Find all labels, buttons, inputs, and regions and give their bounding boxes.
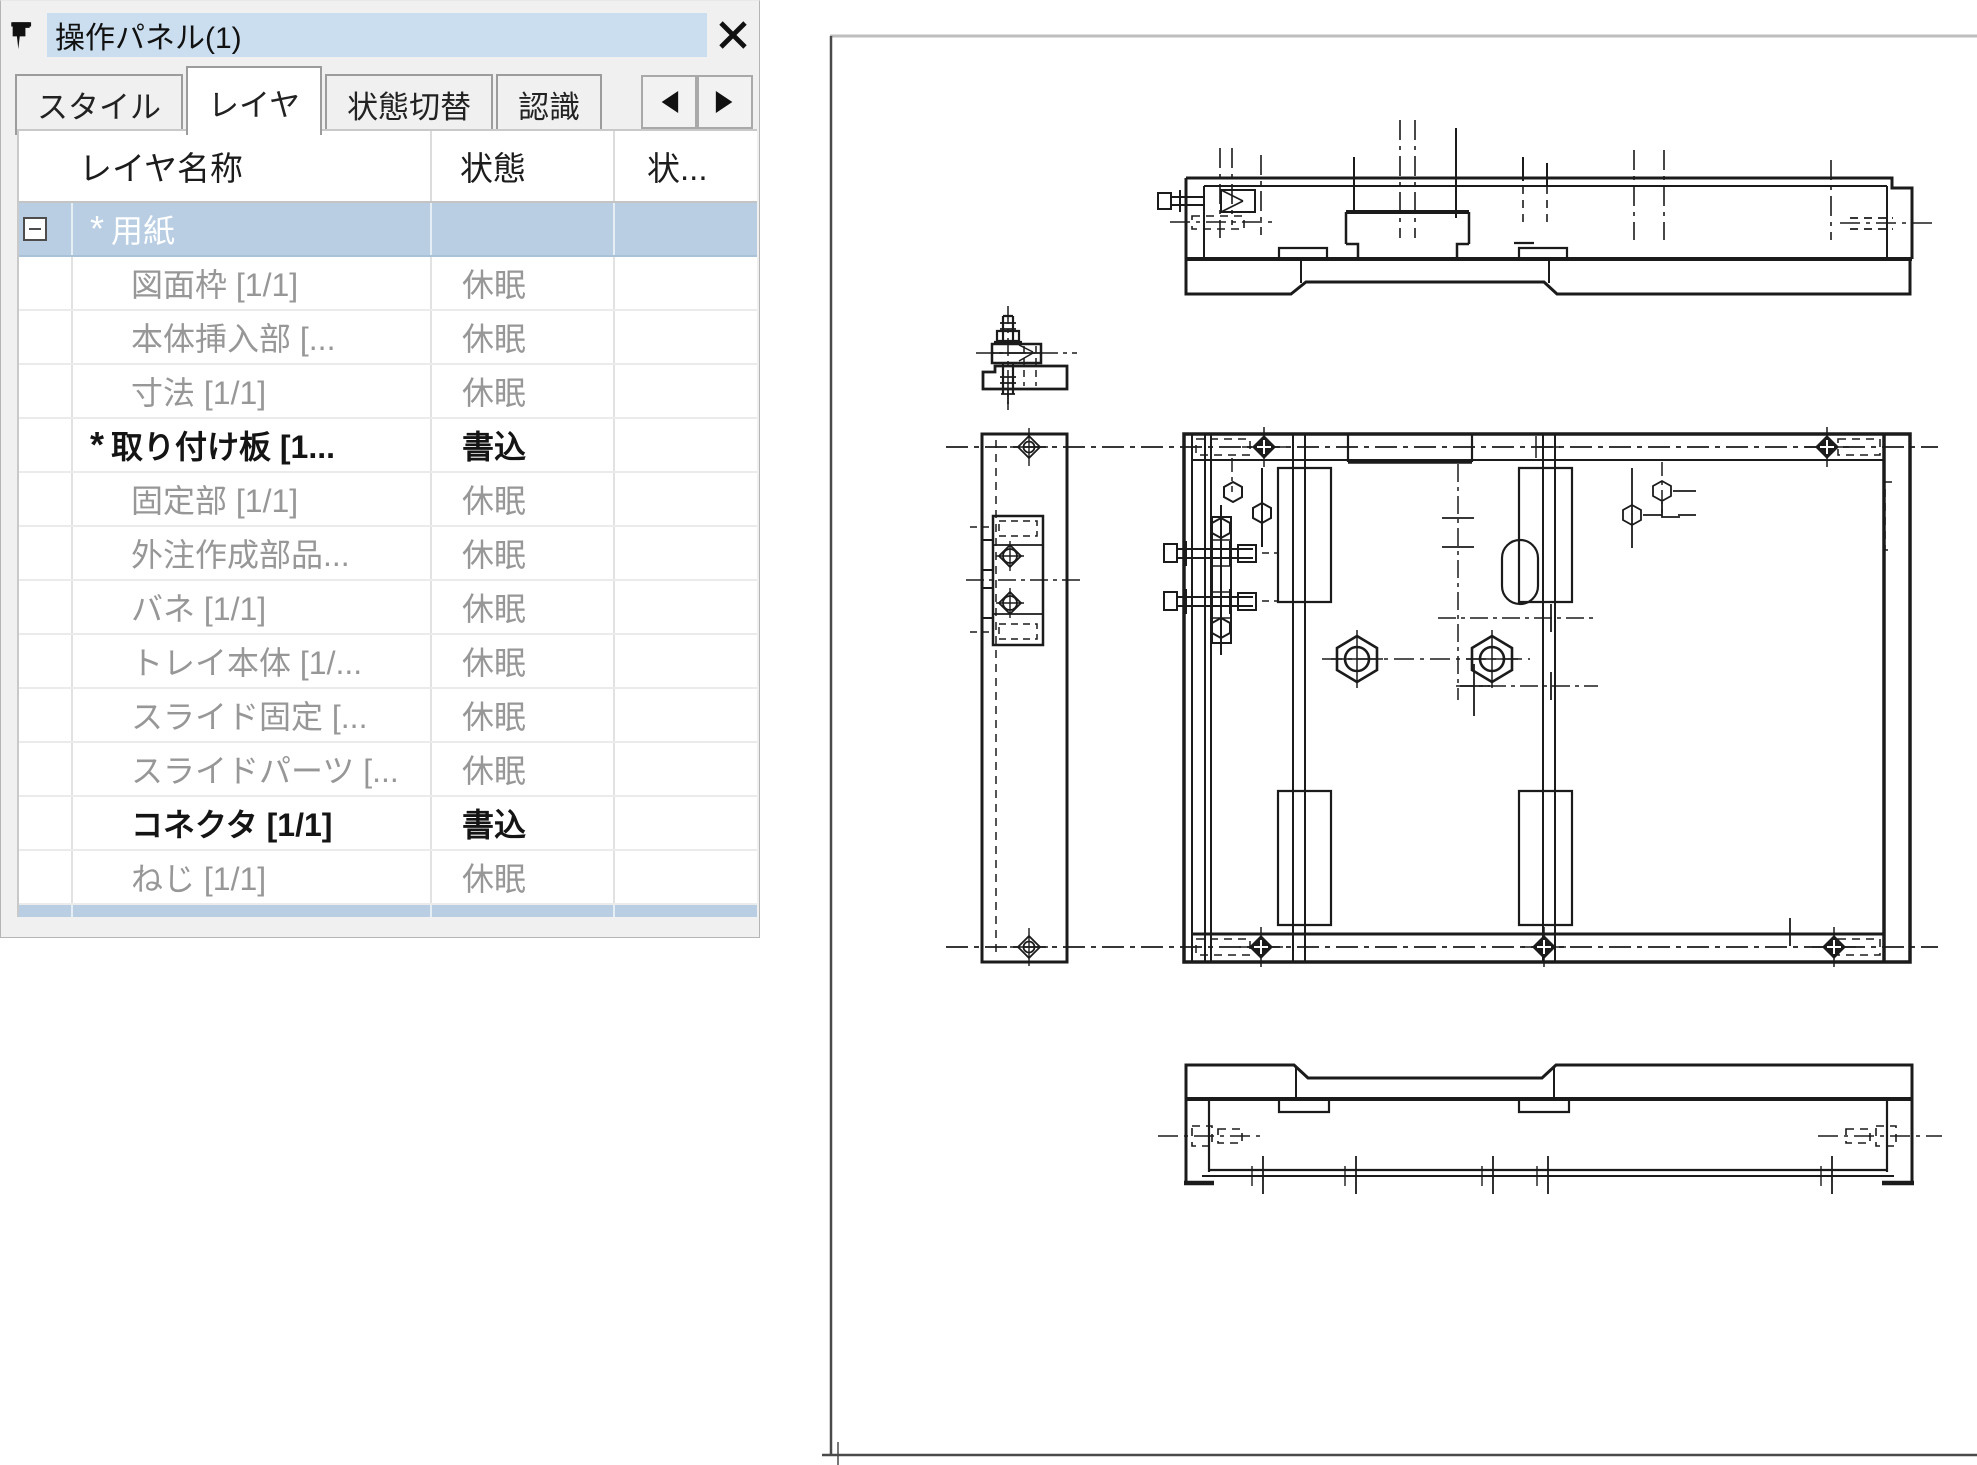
- layer-name: 固定部 [1/1]: [131, 476, 298, 522]
- row-gutter: [19, 743, 73, 795]
- layer-table-body: *用紙図面枠 [1/1]休眠本体挿入部 [...休眠寸法 [1/1]休眠*取り付…: [19, 203, 757, 905]
- layer-status: 休眠: [432, 581, 615, 633]
- layer-status: 休眠: [432, 311, 615, 363]
- layer-name: コネクタ [1/1]: [131, 800, 332, 846]
- layer-row[interactable]: バネ [1/1]休眠: [19, 581, 757, 635]
- top-view[interactable]: [1158, 120, 1938, 294]
- layer-status-2: [615, 419, 757, 471]
- column-header-2[interactable]: 状態: [432, 131, 615, 201]
- panel-titlebar[interactable]: 操作パネル(1): [1, 1, 759, 63]
- left-arrow-icon: [658, 89, 680, 115]
- layer-status: 休眠: [432, 635, 615, 687]
- layer-status-2: [615, 689, 757, 741]
- titlebar-background: 操作パネル(1): [47, 13, 707, 57]
- column-header-1[interactable]: レイヤ名称: [19, 131, 432, 201]
- tab-4[interactable]: 認識: [496, 74, 602, 135]
- tab-scroll-right-button[interactable]: [697, 75, 753, 129]
- layer-asterisk: *: [83, 435, 111, 455]
- fastener-detail[interactable]: [976, 306, 1077, 410]
- layer-row[interactable]: スライド固定 [...休眠: [19, 689, 757, 743]
- partial-row[interactable]: [19, 905, 757, 917]
- layer-status: 休眠: [432, 365, 615, 417]
- layer-status-2: [615, 527, 757, 579]
- layer-name: 寸法 [1/1]: [131, 368, 266, 414]
- row-gutter: [19, 365, 73, 417]
- operation-panel: 操作パネル(1) スタイルレイヤ状態切替認識 レイヤ名称状態状... *用紙図面: [0, 0, 760, 938]
- layer-status: 休眠: [432, 851, 615, 903]
- expand-toggle-icon[interactable]: [19, 203, 73, 255]
- layer-name: 用紙: [111, 206, 175, 252]
- layer-row[interactable]: *用紙: [19, 203, 757, 257]
- layer-name: 本体挿入部 [...: [131, 314, 335, 360]
- layer-status-2: [615, 311, 757, 363]
- front-view[interactable]: [1164, 427, 1910, 967]
- layer-name: 外注作成部品...: [131, 530, 350, 576]
- tab-scroll-left-button[interactable]: [641, 75, 697, 129]
- layer-table: レイヤ名称状態状... *用紙図面枠 [1/1]休眠本体挿入部 [...休眠寸法…: [17, 129, 757, 917]
- row-gutter: [19, 581, 73, 633]
- right-arrow-icon: [714, 89, 736, 115]
- pin-icon[interactable]: [1, 18, 47, 52]
- close-icon: [715, 17, 751, 53]
- layer-row[interactable]: 図面枠 [1/1]休眠: [19, 257, 757, 311]
- layer-row[interactable]: 本体挿入部 [...休眠: [19, 311, 757, 365]
- layer-name: トレイ本体 [1/...: [131, 638, 362, 684]
- tab-2[interactable]: レイヤ: [186, 66, 322, 135]
- layer-row[interactable]: *取り付け板 [1...書込: [19, 419, 757, 473]
- layer-status: 書込: [432, 797, 615, 849]
- layer-row[interactable]: 固定部 [1/1]休眠: [19, 473, 757, 527]
- layer-row[interactable]: トレイ本体 [1/...休眠: [19, 635, 757, 689]
- layer-status: [432, 203, 615, 255]
- layer-row[interactable]: ねじ [1/1]休眠: [19, 851, 757, 905]
- layer-name: バネ [1/1]: [131, 584, 266, 630]
- pushpin-icon: [7, 18, 41, 52]
- layer-name: 図面枠 [1/1]: [131, 260, 298, 306]
- layer-status-2: [615, 743, 757, 795]
- row-gutter: [19, 419, 73, 471]
- tab-3[interactable]: 状態切替: [325, 74, 493, 135]
- layer-status: 休眠: [432, 473, 615, 525]
- side-view[interactable]: [966, 428, 1080, 966]
- layer-asterisk: *: [83, 219, 111, 239]
- layer-status: 休眠: [432, 743, 615, 795]
- layer-status: 書込: [432, 419, 615, 471]
- layer-status-2: [615, 581, 757, 633]
- column-header-3[interactable]: 状...: [615, 131, 757, 201]
- tab-scroll-buttons: [641, 75, 753, 129]
- layer-name: ねじ [1/1]: [131, 854, 266, 900]
- row-gutter: [19, 257, 73, 309]
- centerlines: [946, 447, 1938, 947]
- row-gutter: [19, 527, 73, 579]
- panel-title: 操作パネル(1): [55, 13, 242, 57]
- tab-bar: スタイルレイヤ状態切替認識: [1, 63, 759, 135]
- layer-name: 取り付け板 [1...: [111, 422, 335, 468]
- row-gutter: [19, 473, 73, 525]
- layer-status-2: [615, 203, 757, 255]
- tab-1[interactable]: スタイル: [15, 74, 183, 135]
- layer-status-2: [615, 635, 757, 687]
- row-gutter: [19, 851, 73, 903]
- row-gutter: [19, 635, 73, 687]
- layer-row[interactable]: スライドパーツ [...休眠: [19, 743, 757, 797]
- layer-status: 休眠: [432, 689, 615, 741]
- layer-status: 休眠: [432, 527, 615, 579]
- layer-name: スライド固定 [...: [131, 692, 367, 738]
- layer-row[interactable]: 寸法 [1/1]休眠: [19, 365, 757, 419]
- layer-status-2: [615, 473, 757, 525]
- close-button[interactable]: [707, 11, 759, 59]
- row-gutter: [19, 689, 73, 741]
- layer-row[interactable]: コネクタ [1/1]書込: [19, 797, 757, 851]
- row-gutter: [19, 797, 73, 849]
- layer-status-2: [615, 365, 757, 417]
- layer-status: 休眠: [432, 257, 615, 309]
- layer-status-2: [615, 257, 757, 309]
- layer-row[interactable]: 外注作成部品...休眠: [19, 527, 757, 581]
- layer-status-2: [615, 851, 757, 903]
- layer-name: スライドパーツ [...: [131, 746, 399, 792]
- bottom-view[interactable]: [1158, 1065, 1942, 1194]
- layer-status-2: [615, 797, 757, 849]
- tab-strip: スタイルレイヤ状態切替認識: [15, 66, 602, 135]
- row-gutter: [19, 311, 73, 363]
- layer-table-header: レイヤ名称状態状...: [19, 131, 757, 203]
